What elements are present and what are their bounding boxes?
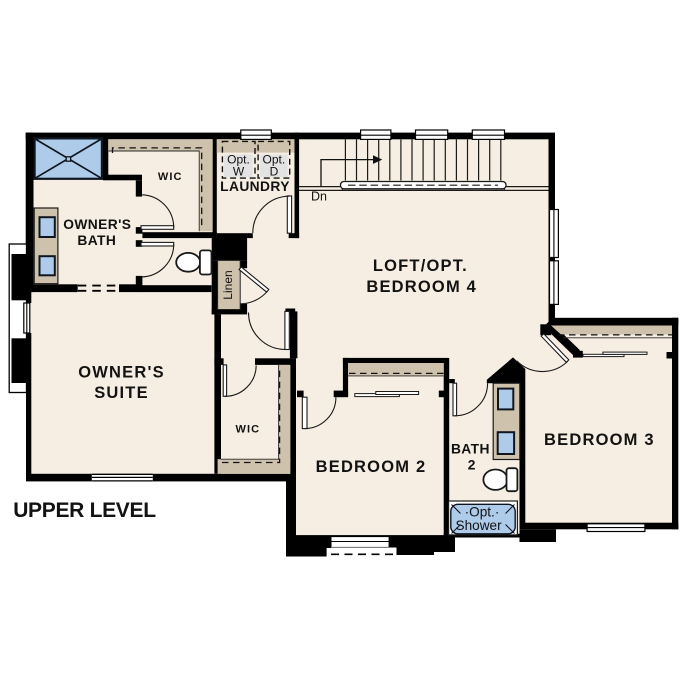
svg-text:W: W bbox=[233, 165, 245, 179]
svg-text:BEDROOM 4: BEDROOM 4 bbox=[366, 278, 477, 296]
svg-text:LOFT/OPT.: LOFT/OPT. bbox=[373, 257, 468, 275]
svg-text:OWNER'S: OWNER'S bbox=[78, 363, 165, 381]
svg-text:BEDROOM 2: BEDROOM 2 bbox=[316, 458, 427, 476]
svg-text:WIC: WIC bbox=[158, 171, 183, 183]
svg-text:BATH: BATH bbox=[77, 233, 116, 248]
svg-text:OWNER'S: OWNER'S bbox=[63, 217, 131, 232]
svg-text:BEDROOM 3: BEDROOM 3 bbox=[544, 431, 655, 449]
svg-text:LAUNDRY: LAUNDRY bbox=[220, 179, 290, 194]
svg-text:Linen: Linen bbox=[221, 270, 235, 299]
svg-text:Dn: Dn bbox=[311, 190, 327, 204]
svg-text:SUITE: SUITE bbox=[94, 384, 149, 402]
svg-text:2: 2 bbox=[468, 457, 476, 472]
svg-text:D: D bbox=[270, 165, 279, 179]
svg-text:Shower: Shower bbox=[456, 518, 503, 533]
svg-text:WIC: WIC bbox=[236, 423, 261, 435]
svg-text:BATH: BATH bbox=[451, 442, 490, 457]
svg-text:UPPER LEVEL: UPPER LEVEL bbox=[13, 499, 156, 522]
